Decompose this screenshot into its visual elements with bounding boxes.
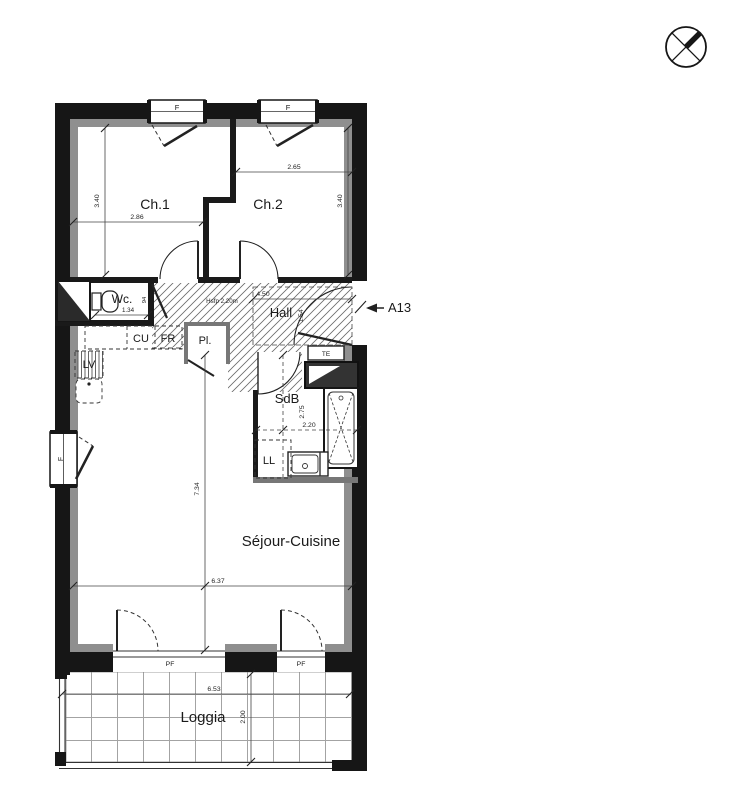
dim-sejour-length: 7.34	[194, 482, 201, 495]
window-label-f3: F	[58, 457, 65, 461]
bathtub-icon	[324, 388, 358, 468]
window-f3	[50, 430, 93, 488]
dim-sejour-width: 6.37	[211, 578, 224, 585]
dim-loggia-depth: 2.00	[240, 710, 247, 723]
dim-ch2-width: 2.65	[287, 164, 300, 171]
fixture-label-cu: CU	[133, 333, 149, 345]
washbasin-icon	[288, 452, 328, 476]
floor-plan-page: 3.40 2.86 2.65 3.40 1.34 94 4.50 1.54 2.…	[0, 0, 733, 800]
dim-sdb-length: 2.75	[299, 405, 306, 418]
dim-hall-width: 4.50	[256, 291, 269, 298]
dim-sdb-width: 2.20	[302, 422, 315, 429]
room-label-ch2: Ch.2	[253, 196, 283, 212]
dim-wc-width: 1.34	[122, 307, 135, 314]
dim-ch1-depth: 3.40	[94, 194, 101, 207]
room-label-loggia: Loggia	[180, 709, 226, 726]
duct-shaft-left	[58, 281, 90, 321]
dim-hall-depth: 1.54	[298, 309, 305, 322]
dim-loggia-width: 6.53	[207, 686, 220, 693]
hall-ceiling-note: Hsfp 2.20m	[206, 298, 238, 305]
room-label-hall: Hall	[270, 305, 293, 320]
closet-pl	[184, 322, 230, 376]
unit-label: A13	[388, 300, 411, 315]
door-ch1	[160, 241, 198, 279]
north-compass-icon	[666, 27, 706, 67]
fixture-label-te: TE	[322, 351, 331, 358]
fixture-label-pl: Pl.	[199, 335, 212, 347]
unit-callout: A13	[366, 300, 411, 315]
fixture-label-lv: LV	[83, 359, 96, 371]
fixture-label-ll: LL	[263, 455, 275, 467]
window-label-pf1: PF	[166, 661, 175, 668]
window-label-pf2: PF	[297, 661, 306, 668]
room-label-sejour: Séjour-Cuisine	[242, 533, 340, 550]
window-label-f2: F	[286, 103, 291, 112]
room-label-wc: Wc.	[112, 292, 133, 306]
floor-plan-drawing: 3.40 2.86 2.65 3.40 1.34 94 4.50 1.54 2.…	[0, 0, 733, 800]
room-label-sdb: SdB	[275, 391, 300, 406]
room-label-ch1: Ch.1	[140, 196, 170, 212]
fixture-label-fr: FR	[161, 333, 176, 345]
dim-wc-depth: 94	[142, 296, 148, 303]
door-ch2	[240, 241, 278, 279]
callout-arrow-icon	[366, 304, 377, 313]
dim-ch1-width: 2.86	[130, 214, 143, 221]
dim-ch2-depth: 3.40	[337, 194, 344, 207]
window-label-f1: F	[175, 103, 180, 112]
kitchen-sink-icon	[76, 379, 102, 403]
duct-shaft-right	[305, 362, 358, 388]
dimension-labels: 3.40 2.86 2.65 3.40 1.34 94 4.50 1.54 2.…	[94, 164, 344, 724]
